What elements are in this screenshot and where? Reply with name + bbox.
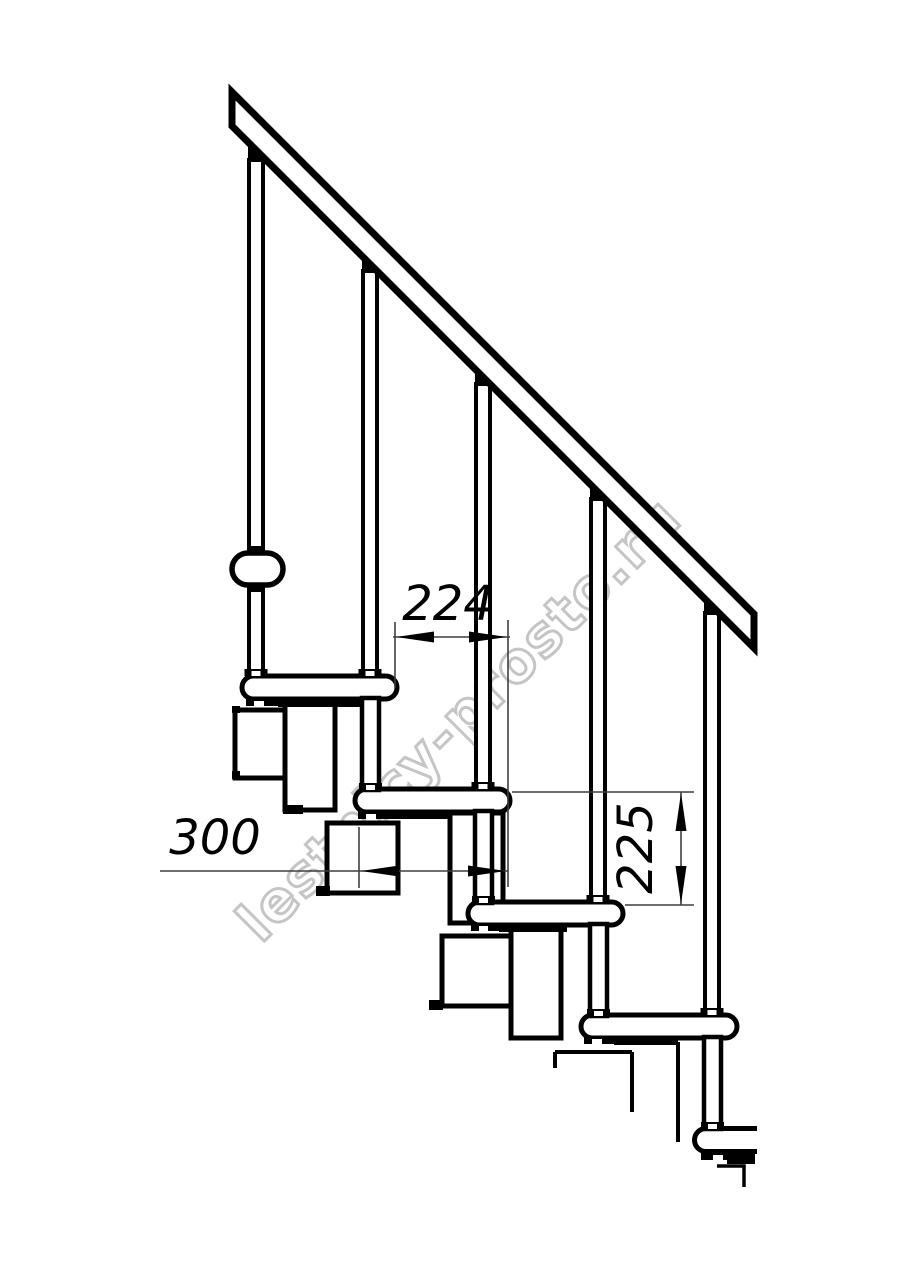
module-box-2 — [327, 823, 398, 893]
baluster-4 — [591, 499, 605, 902]
module-box-landing — [235, 710, 285, 778]
baluster-2 — [363, 271, 377, 676]
module-fitting — [283, 805, 303, 814]
module-fitting — [232, 771, 240, 779]
drawing-svg: lestnicy-prosto.ru — [0, 0, 914, 1280]
tread-5-partial — [695, 1129, 758, 1152]
baluster-3-sleeve — [475, 811, 492, 903]
baluster-5-sleeve — [704, 1037, 721, 1129]
collar-body — [232, 553, 283, 585]
tread-2 — [355, 789, 510, 812]
module-fitting — [232, 706, 240, 713]
background — [0, 0, 914, 1280]
module-box-1 — [285, 703, 335, 810]
baluster-2-sleeve — [362, 698, 379, 790]
tread-4 — [581, 1015, 737, 1038]
module-fitting — [316, 886, 330, 896]
staircase-drawing: lestnicy-prosto.ru — [0, 0, 914, 1280]
module-fitting — [429, 1000, 443, 1010]
module-box-4 — [442, 936, 518, 1006]
baluster-4-sleeve — [590, 924, 607, 1016]
dimension-label-step-run: 224 — [402, 576, 494, 632]
baluster-1 — [249, 160, 263, 676]
dimension-label-step-rise: 225 — [608, 802, 664, 894]
dimension-label-tread-depth: 300 — [169, 810, 261, 866]
module-box-5 — [511, 929, 561, 1038]
tread-1 — [242, 676, 397, 699]
tread-3 — [468, 902, 623, 925]
baluster-5 — [705, 613, 719, 1015]
handrail-end-collar — [232, 546, 283, 592]
